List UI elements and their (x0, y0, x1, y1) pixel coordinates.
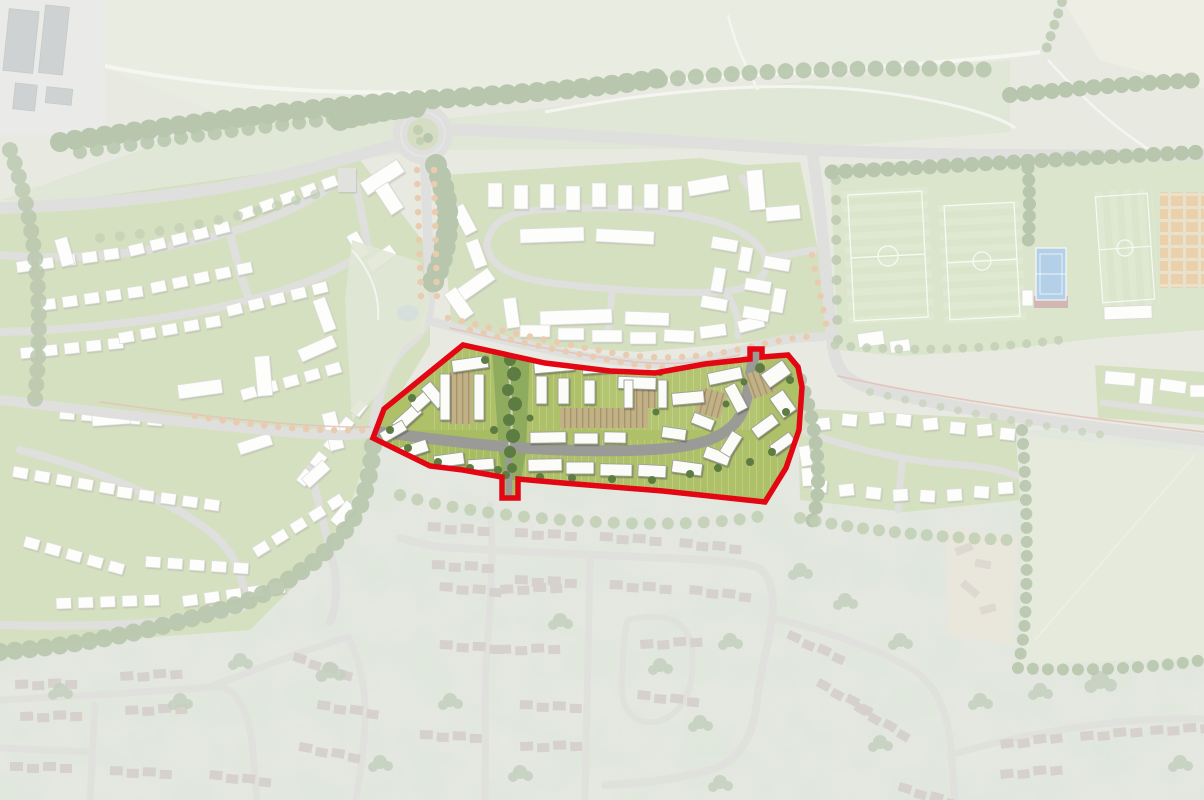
fade-overlay (0, 0, 1204, 800)
map-canvas (0, 0, 1204, 800)
masterplan-map[interactable] (0, 0, 1204, 800)
